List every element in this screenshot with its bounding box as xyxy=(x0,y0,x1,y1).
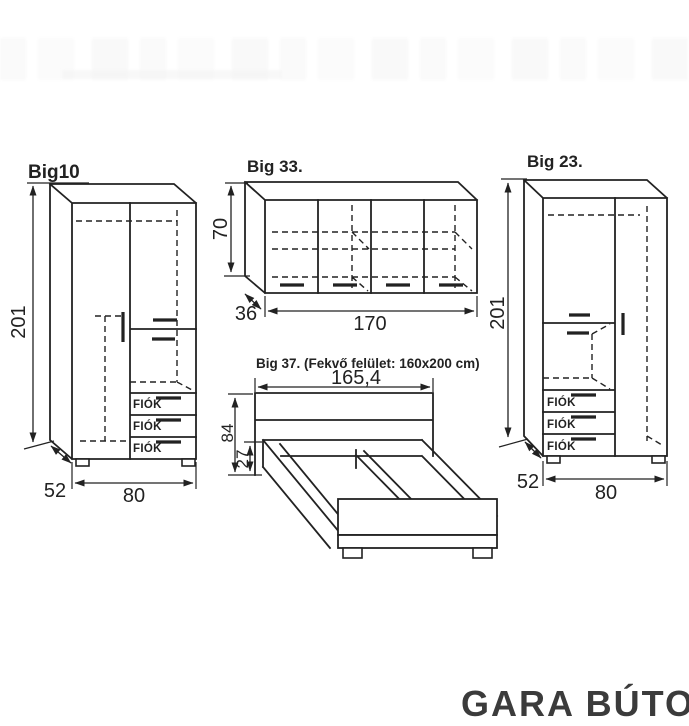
big23-right-foot xyxy=(652,456,665,463)
furniture-diagram: Big10 201 52 80 FIÓK FIÓK FIÓK Big 33. 7… xyxy=(0,0,689,726)
big23-drawer-label-2: FIÓK xyxy=(547,418,576,431)
bed-footboard xyxy=(338,499,497,535)
big33-depth-label: 36 xyxy=(235,303,257,325)
big33-door-divisions xyxy=(318,200,424,293)
big10-drawer-label-1: FIÓK xyxy=(133,398,162,411)
big23-depth-label: 52 xyxy=(517,471,539,493)
big23-carcass-outline xyxy=(524,180,667,456)
big23-width-label: 80 xyxy=(595,482,617,504)
big33-extension-lines xyxy=(224,183,477,317)
big23-height-label: 201 xyxy=(487,296,509,329)
big10-depth-label: 52 xyxy=(44,480,66,502)
bed-frame-height-label: 27 xyxy=(233,450,252,469)
big33-height-label: 70 xyxy=(210,218,232,240)
big33-width-label: 170 xyxy=(353,313,386,335)
bed-width-label: 165,4 xyxy=(331,367,381,389)
big10-right-foot xyxy=(182,459,195,466)
big10-title: Big10 xyxy=(28,162,80,183)
wardrobe-big10-drawing: Big10 201 52 80 FIÓK FIÓK FIÓK xyxy=(8,162,196,507)
big23-drawer-label-1: FIÓK xyxy=(547,396,576,409)
bed-big37-drawing: Big 37. (Fekvő felület: 160x200 cm) 165,… xyxy=(218,356,497,558)
catalog-page: Big10 201 52 80 FIÓK FIÓK FIÓK Big 33. 7… xyxy=(0,0,689,726)
big33-title: Big 33. xyxy=(247,157,303,176)
wall-cabinet-big33-drawing: Big 33. 70 36 170 xyxy=(210,157,477,335)
brand-logo-text: GARA BÚTOR xyxy=(461,683,689,725)
bed-footboard-base xyxy=(338,535,497,548)
bed-left-foot xyxy=(343,548,362,558)
big10-drawer-label-3: FIÓK xyxy=(133,442,162,455)
big10-left-foot xyxy=(76,459,89,466)
big10-drawer-label-2: FIÓK xyxy=(133,420,162,433)
big23-title: Big 23. xyxy=(527,152,583,171)
bed-right-foot xyxy=(473,548,492,558)
big23-hidden-lines xyxy=(543,206,662,445)
wardrobe-big23-drawing: Big 23. 201 52 80 FIÓK FIÓK FIÓK xyxy=(487,152,667,504)
big10-height-label: 201 xyxy=(8,305,30,338)
big10-width-label: 80 xyxy=(123,485,145,507)
big33-hidden-lines xyxy=(272,205,472,291)
bed-height-label: 84 xyxy=(218,424,237,443)
big23-drawer-label-3: FIÓK xyxy=(547,440,576,453)
big23-left-foot xyxy=(547,456,560,463)
